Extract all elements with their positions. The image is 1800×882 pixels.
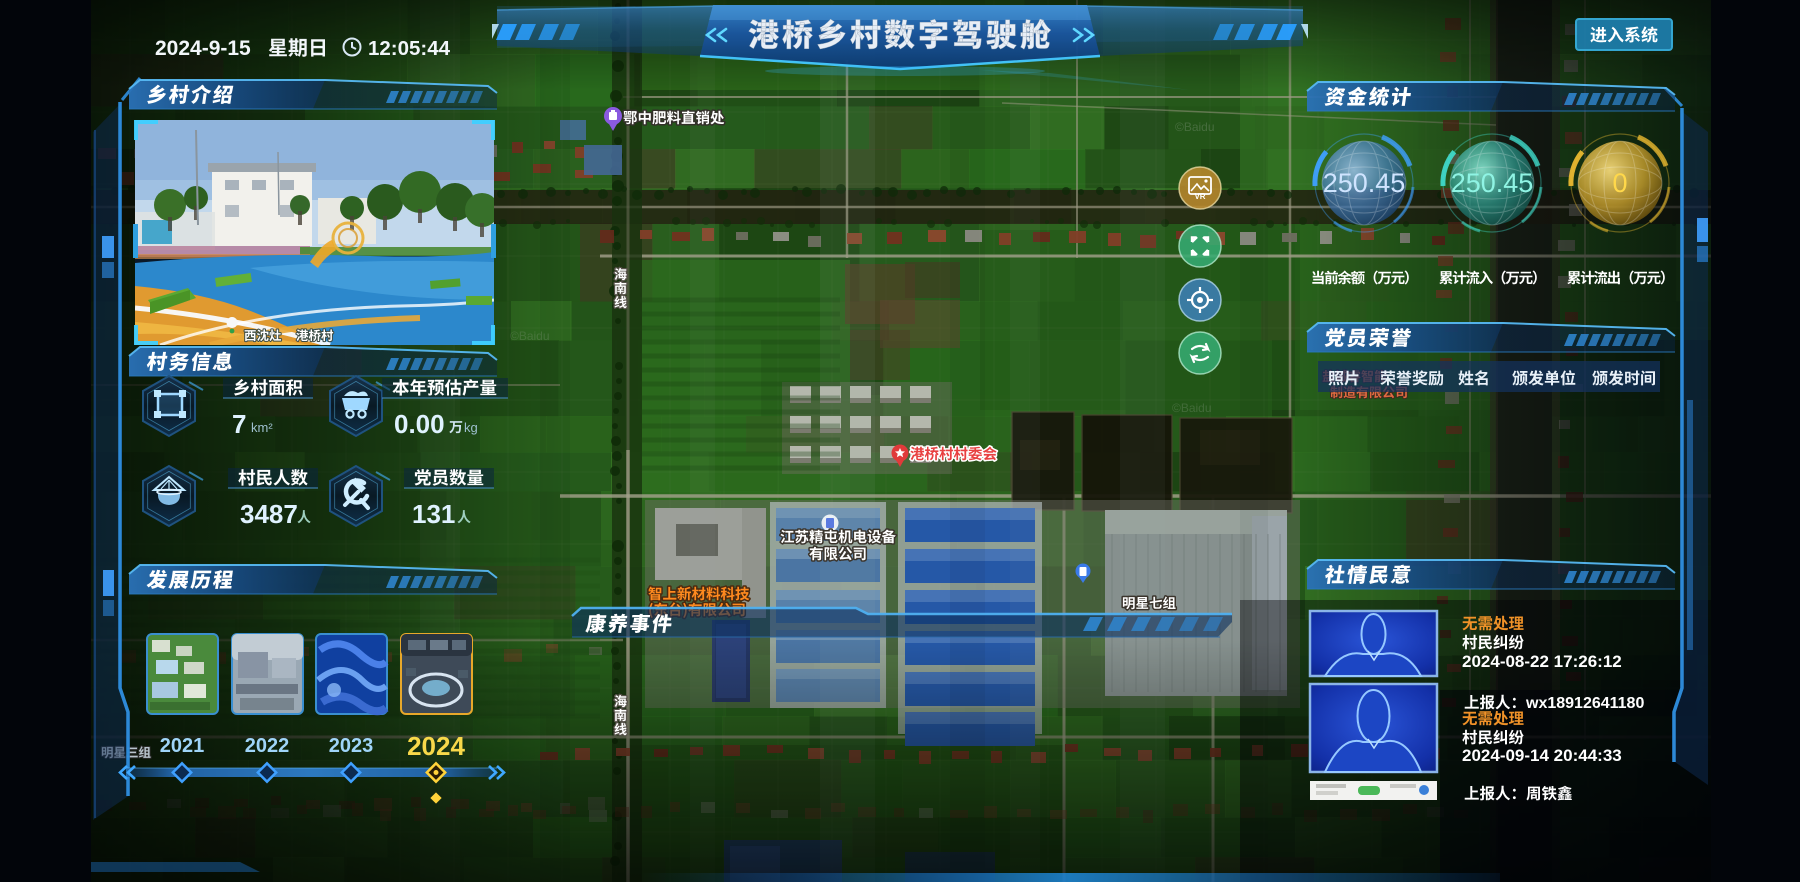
svg-text:2024-9-15: 2024-9-15 bbox=[155, 37, 251, 60]
svg-text:250.45: 250.45 bbox=[1451, 168, 1534, 198]
svg-text:kg: kg bbox=[464, 420, 478, 435]
svg-text:km²: km² bbox=[251, 420, 273, 435]
svg-text:131: 131 bbox=[412, 499, 455, 529]
svg-text:2021: 2021 bbox=[160, 735, 205, 757]
svg-text:2024: 2024 bbox=[407, 731, 465, 761]
svg-text:0: 0 bbox=[1612, 168, 1627, 198]
svg-text:2024-09-14 20:44:33: 2024-09-14 20:44:33 bbox=[1462, 746, 1622, 765]
svg-text:2023: 2023 bbox=[329, 735, 374, 757]
svg-text:2022: 2022 bbox=[245, 735, 290, 757]
svg-text:7: 7 bbox=[232, 409, 246, 439]
svg-text:12:05:44: 12:05:44 bbox=[368, 37, 451, 60]
svg-text:3487: 3487 bbox=[240, 499, 298, 529]
svg-text:250.45: 250.45 bbox=[1323, 168, 1406, 198]
svg-text:wx18912641180: wx18912641180 bbox=[1525, 695, 1644, 712]
svg-text:VR: VR bbox=[1194, 192, 1205, 201]
svg-text:2024-08-22 17:26:12: 2024-08-22 17:26:12 bbox=[1462, 652, 1622, 671]
svg-text:0.00: 0.00 bbox=[394, 409, 445, 439]
